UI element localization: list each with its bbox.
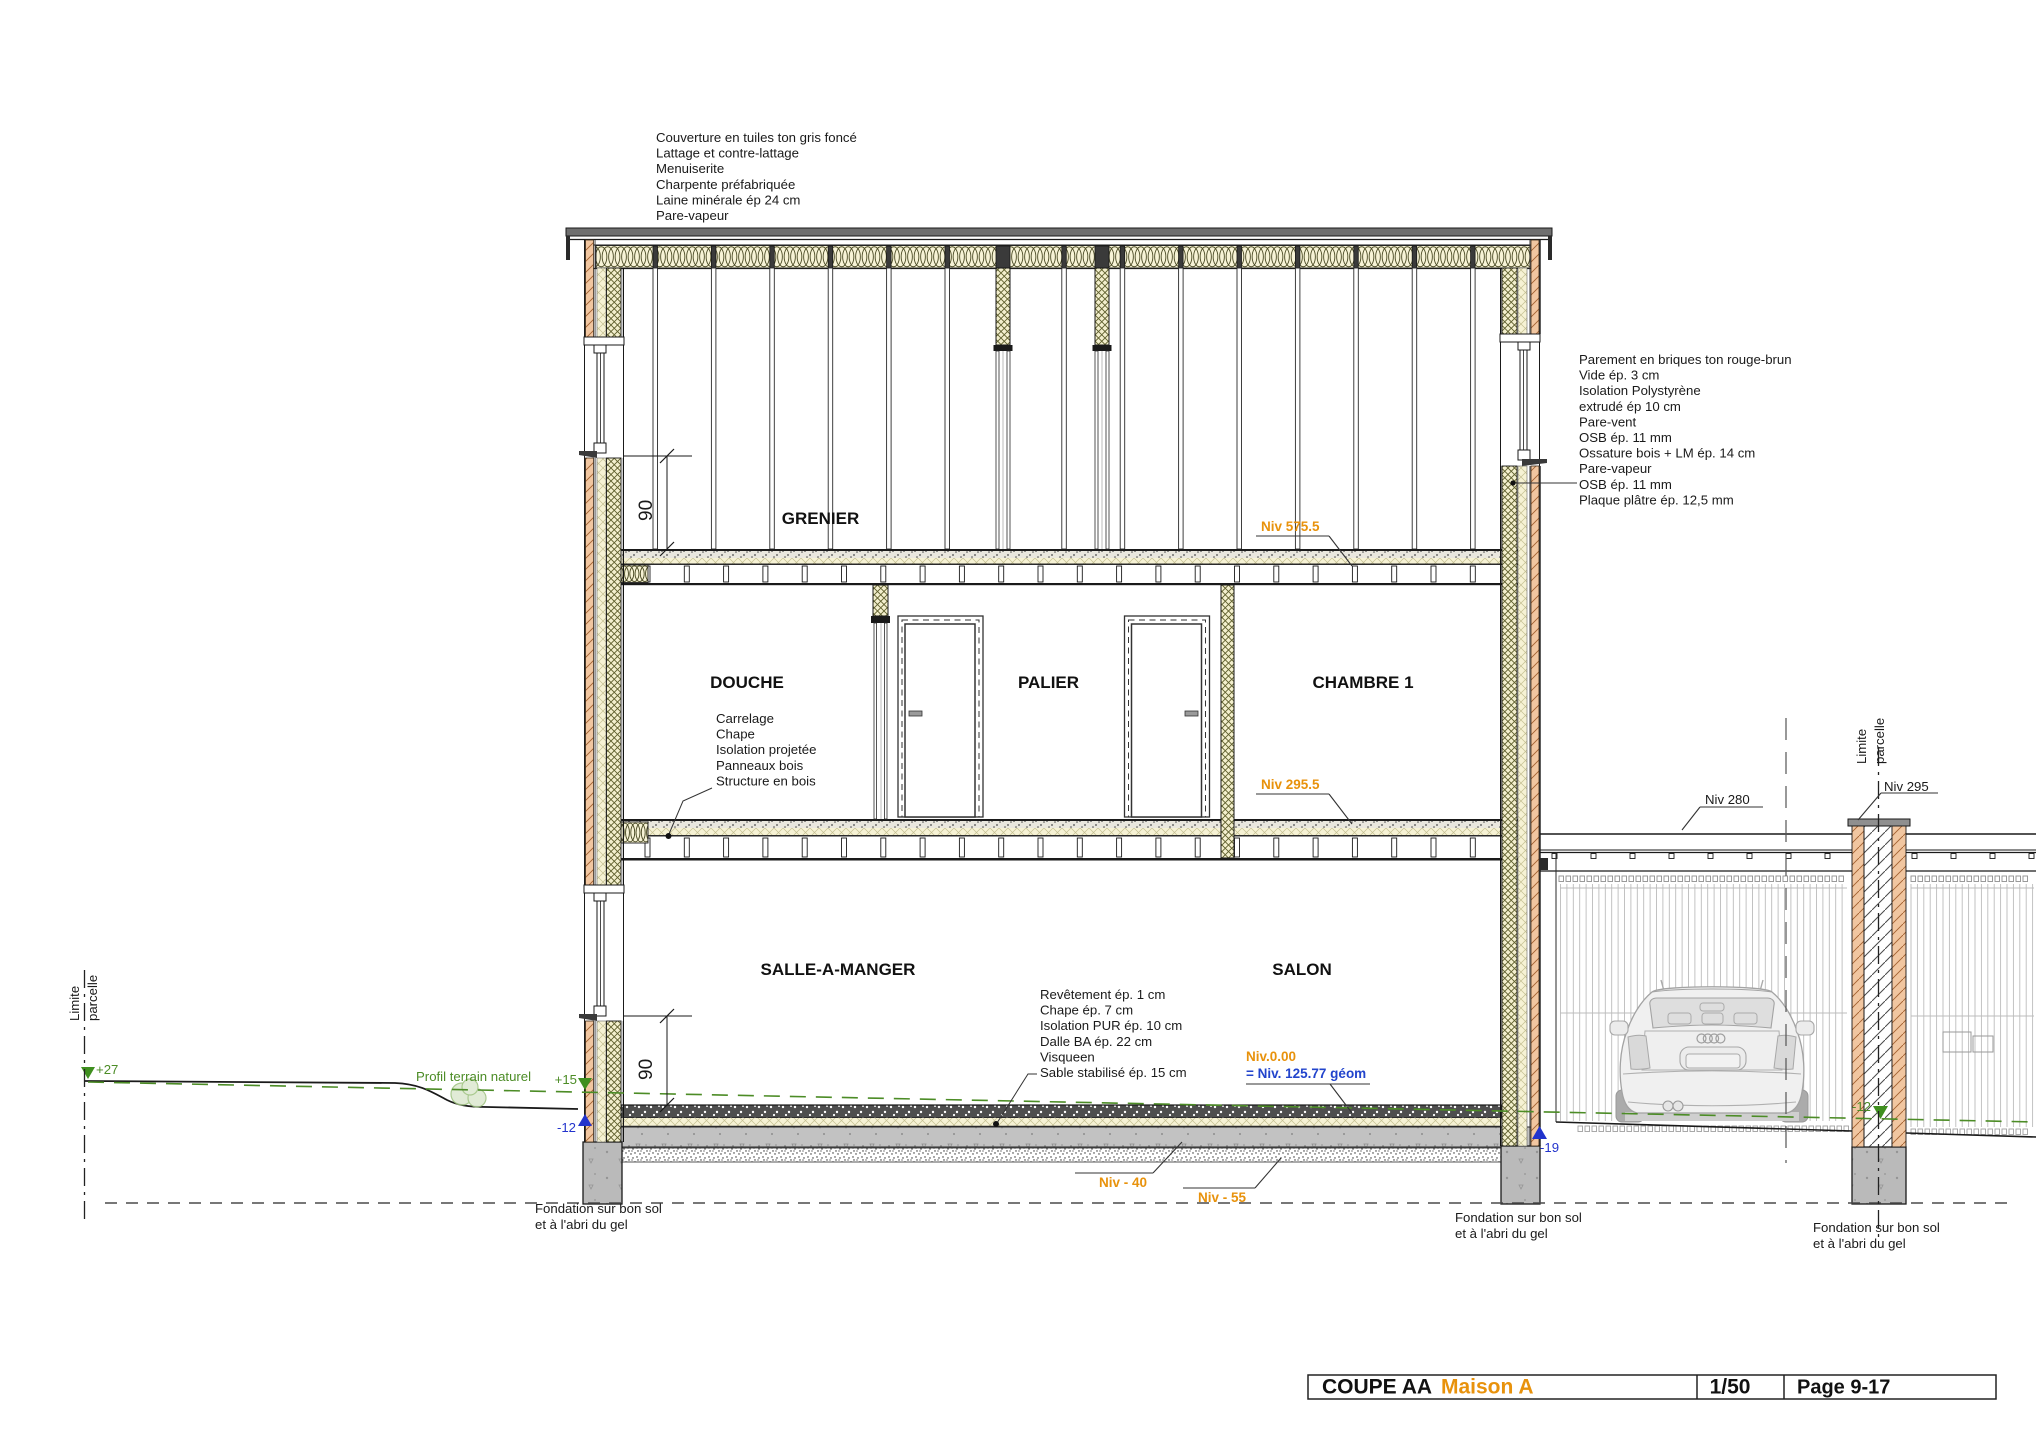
svg-text:Niv 280: Niv 280 (1705, 792, 1750, 807)
svg-text:Isolation PUR ép. 10 cm: Isolation PUR ép. 10 cm (1040, 1018, 1182, 1033)
svg-text:Panneaux bois: Panneaux bois (716, 758, 804, 773)
svg-text:Niv.0.00: Niv.0.00 (1246, 1049, 1296, 1064)
svg-text:Pare-vapeur: Pare-vapeur (656, 208, 729, 223)
svg-text:Isolation Polystyrène: Isolation Polystyrène (1579, 383, 1701, 398)
svg-text:-19: -19 (1540, 1140, 1559, 1155)
svg-text:SALLE-A-MANGER: SALLE-A-MANGER (761, 960, 916, 979)
svg-text:Niv - 40: Niv - 40 (1099, 1175, 1147, 1190)
svg-text:et à l'abri du gel: et à l'abri du gel (1455, 1226, 1548, 1241)
svg-text:Limite: Limite (1854, 729, 1869, 764)
svg-text:DOUCHE: DOUCHE (710, 673, 784, 692)
svg-text:Chape ép. 7 cm: Chape ép. 7 cm (1040, 1003, 1133, 1018)
svg-text:Vide ép. 3 cm: Vide ép. 3 cm (1579, 368, 1659, 383)
svg-text:parcelle: parcelle (85, 975, 100, 1021)
svg-text:Maison A: Maison A (1441, 1376, 1534, 1399)
svg-text:90: 90 (636, 500, 657, 521)
svg-text:et à l'abri du gel: et à l'abri du gel (1813, 1236, 1906, 1251)
svg-text:Carrelage: Carrelage (716, 711, 774, 726)
svg-text:= Niv. 125.77 géom: = Niv. 125.77 géom (1246, 1066, 1366, 1081)
svg-text:PALIER: PALIER (1018, 673, 1079, 692)
svg-text:SALON: SALON (1272, 960, 1332, 979)
svg-text:Chape: Chape (716, 727, 755, 742)
svg-text:+15: +15 (555, 1072, 577, 1087)
svg-text:Charpente préfabriquée: Charpente préfabriquée (656, 177, 795, 192)
svg-text:Isolation projetée: Isolation projetée (716, 742, 816, 757)
svg-text:Dalle BA ép. 22 cm: Dalle BA ép. 22 cm (1040, 1034, 1152, 1049)
svg-text:Laine minérale ép 24 cm: Laine minérale ép 24 cm (656, 192, 800, 207)
svg-text:Fondation sur bon sol: Fondation sur bon sol (535, 1201, 662, 1216)
svg-text:Pare-vapeur: Pare-vapeur (1579, 461, 1652, 476)
svg-text:Fondation sur bon sol: Fondation sur bon sol (1455, 1210, 1582, 1225)
svg-text:1/50: 1/50 (1710, 1376, 1751, 1399)
svg-text:Menuiserite: Menuiserite (656, 161, 724, 176)
svg-text:Parement en briques ton rouge-: Parement en briques ton rouge-brun (1579, 352, 1792, 367)
svg-text:-12: -12 (557, 1120, 576, 1135)
svg-text:et à l'abri du gel: et à l'abri du gel (535, 1217, 628, 1232)
svg-text:Pare-vent: Pare-vent (1579, 414, 1637, 429)
svg-text:Revêtement ép. 1 cm: Revêtement ép. 1 cm (1040, 987, 1165, 1002)
svg-text:Structure en bois: Structure en bois (716, 773, 816, 788)
svg-text:Couverture en tuiles ton gris: Couverture en tuiles ton gris foncé (656, 130, 857, 145)
svg-text:Niv 575.5: Niv 575.5 (1261, 519, 1320, 534)
svg-text:COUPE AA: COUPE AA (1322, 1376, 1432, 1399)
svg-text:Limite: Limite (67, 986, 82, 1021)
svg-text:Visqueen: Visqueen (1040, 1049, 1095, 1064)
svg-text:Profil terrain naturel: Profil terrain naturel (416, 1069, 531, 1084)
svg-text:Sable stabilisé ép. 15 cm: Sable stabilisé ép. 15 cm (1040, 1065, 1187, 1080)
svg-text:90: 90 (636, 1059, 657, 1080)
svg-text:extrudé ép 10 cm: extrudé ép 10 cm (1579, 399, 1681, 414)
svg-text:GRENIER: GRENIER (782, 509, 859, 528)
svg-text:Niv 295.5: Niv 295.5 (1261, 777, 1320, 792)
svg-text:Lattage et contre-lattage: Lattage et contre-lattage (656, 146, 799, 161)
svg-text:Ossature bois + LM ép. 14 cm: Ossature bois + LM ép. 14 cm (1579, 446, 1755, 461)
svg-text:Niv 295: Niv 295 (1884, 779, 1929, 794)
svg-text:OSB ép. 11 mm: OSB ép. 11 mm (1579, 477, 1672, 492)
svg-text:Page 9-17: Page 9-17 (1797, 1377, 1890, 1399)
svg-text:-12: -12 (1852, 1099, 1871, 1114)
svg-text:CHAMBRE 1: CHAMBRE 1 (1312, 673, 1413, 692)
svg-text:Niv - 55: Niv - 55 (1198, 1190, 1247, 1205)
svg-text:+27: +27 (96, 1062, 118, 1077)
svg-text:Fondation sur bon sol: Fondation sur bon sol (1813, 1220, 1940, 1235)
svg-text:Plaque plâtre ép. 12,5 mm: Plaque plâtre ép. 12,5 mm (1579, 492, 1734, 507)
svg-text:OSB ép. 11 mm: OSB ép. 11 mm (1579, 430, 1672, 445)
svg-text:parcelle: parcelle (1872, 718, 1887, 764)
